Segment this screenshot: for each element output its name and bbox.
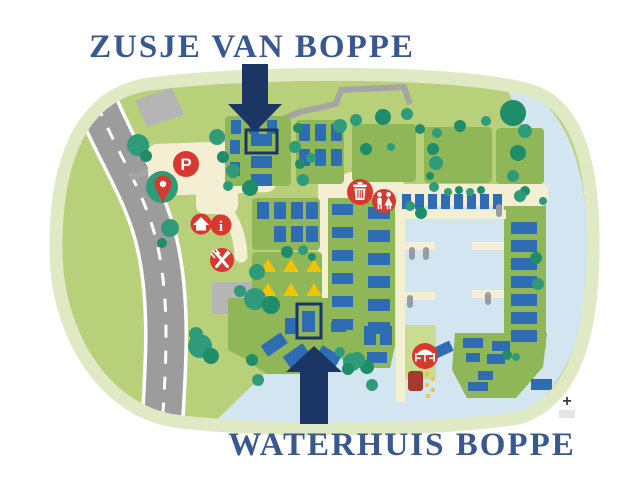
beach-icon: [412, 343, 438, 369]
home-icon: [191, 214, 212, 235]
location-pin-icon: [146, 171, 178, 203]
toilets-icon: [372, 189, 396, 213]
marina-east-strip: [504, 192, 546, 350]
svg-text:+: +: [562, 393, 571, 410]
beach-building: [408, 371, 423, 391]
park-map-illustration: P i: [0, 0, 640, 480]
info-icon: i: [211, 215, 232, 236]
svg-text:P: P: [180, 155, 191, 174]
waterhuis-title: WATERHUIS BOPPE: [228, 427, 576, 463]
parking-icon: P: [173, 151, 199, 177]
zusje-title: ZUSJE VAN BOPPE: [89, 29, 415, 65]
trash-icon: [347, 179, 373, 205]
svg-text:i: i: [219, 219, 223, 235]
restaurant-icon: [210, 248, 234, 272]
screenshot-root: P i: [0, 0, 640, 480]
zoom-in-control[interactable]: +: [559, 393, 575, 418]
